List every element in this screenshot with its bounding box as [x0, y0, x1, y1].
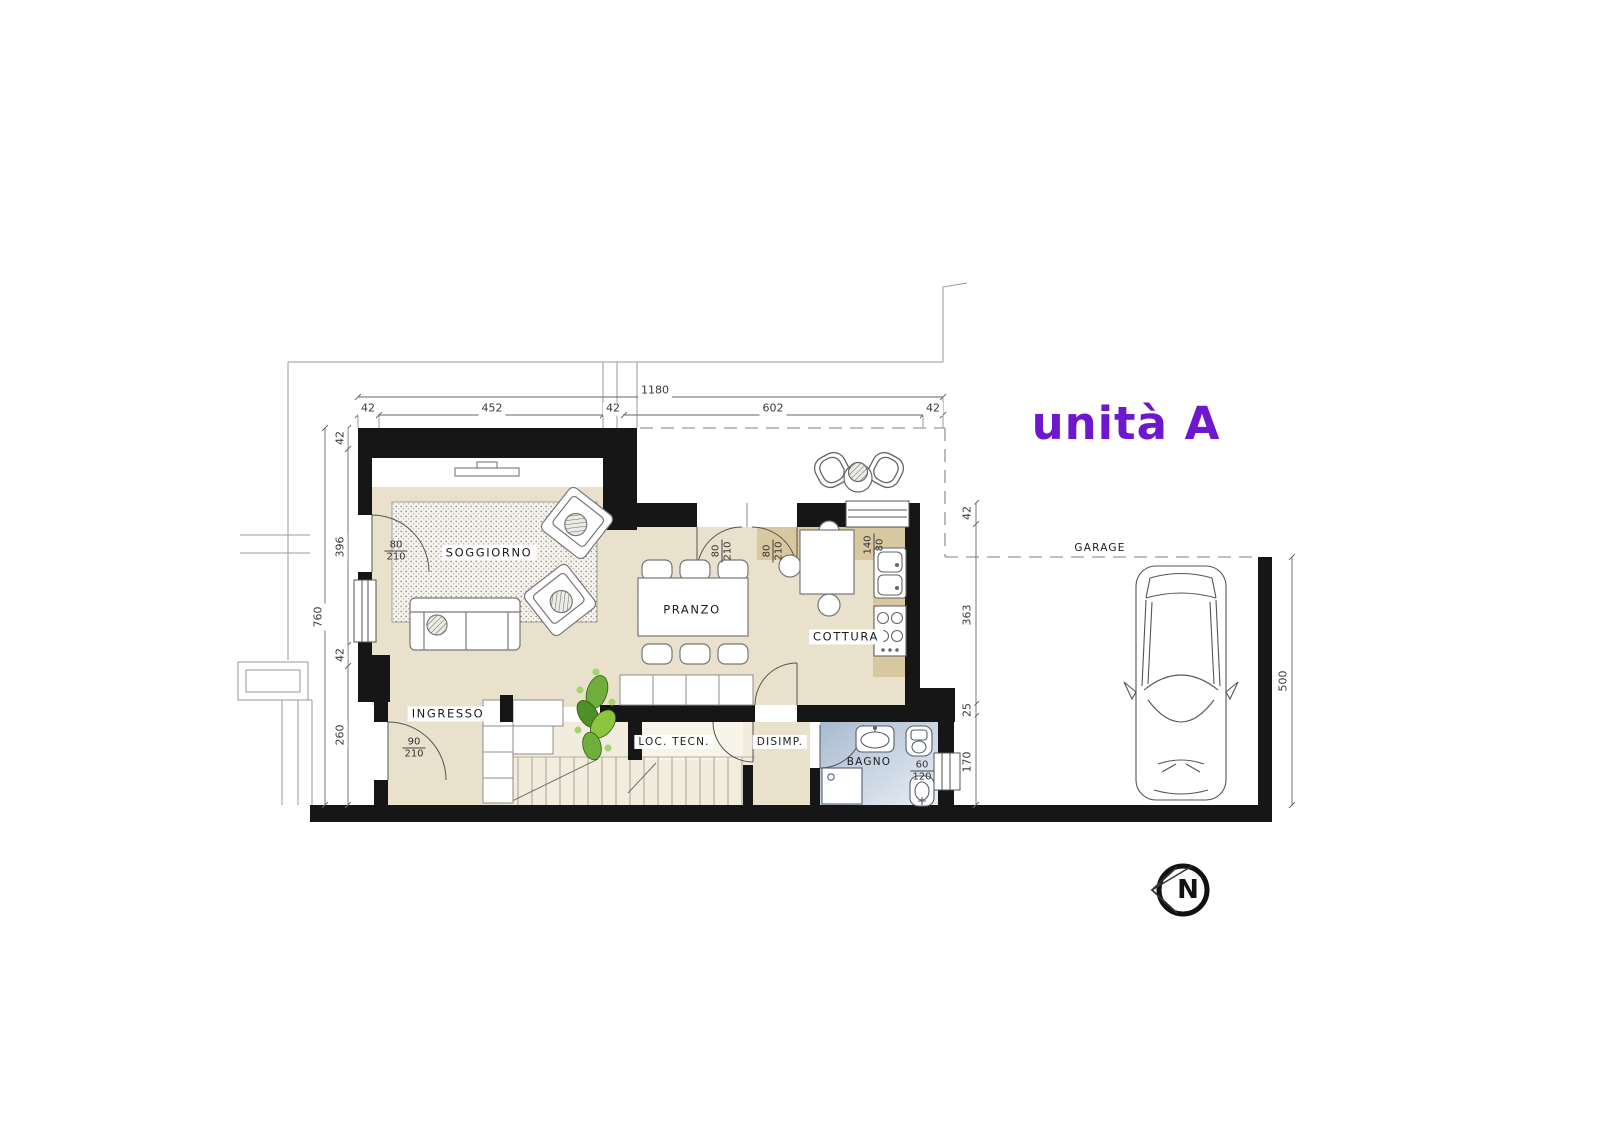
opening-size-bagno-window: 60 120	[910, 760, 933, 783]
dim-top-seg: 42	[603, 403, 623, 416]
wardrobe-row	[620, 675, 753, 705]
dim-overall-width: 1180	[638, 385, 672, 398]
floor-plan-drawing	[0, 0, 1600, 1131]
dim-top-seg: 452	[479, 403, 506, 416]
dim-top-seg: 602	[760, 403, 787, 416]
floor-plan-page: unità A SOGGIORNO PRANZO COTTURA INGRESS…	[0, 0, 1600, 1131]
dim-left-overall: 760	[313, 604, 326, 631]
patio-chair	[864, 448, 907, 491]
opening-size-cottura-window: 140 80	[863, 533, 886, 556]
dim-right-seg: 363	[962, 602, 975, 629]
dim-left-seg: 260	[335, 722, 348, 749]
shower	[822, 768, 862, 804]
dim-top-seg: 42	[923, 403, 943, 416]
dim-top-seg: 42	[358, 403, 378, 416]
opening-size-pranzo-door-right: 80 210	[762, 539, 785, 562]
bath-sink	[856, 726, 894, 752]
opening-size-soggiorno-door: 80 210	[384, 540, 407, 563]
dim-left-seg: 396	[335, 534, 348, 561]
room-label-ingresso: INGRESSO	[408, 706, 489, 721]
cottura-window	[846, 501, 909, 527]
tv-unit	[455, 462, 519, 476]
room-label-disimp: DISIMP.	[753, 735, 807, 749]
bagno-window	[934, 753, 960, 790]
dim-left-seg: 42	[335, 645, 348, 665]
room-label-cottura: COTTURA	[809, 629, 883, 644]
sofa	[410, 598, 520, 650]
room-label-garage: GARAGE	[1070, 541, 1129, 555]
dim-right-seg: 42	[962, 503, 975, 523]
room-label-bagno: BAGNO	[843, 755, 895, 769]
car	[1124, 566, 1238, 800]
room-label-soggiorno: SOGGIORNO	[442, 545, 537, 560]
room-label-loc-tecn: LOC. TECN.	[634, 735, 713, 749]
north-letter: N	[1177, 876, 1199, 906]
dim-garage-depth: 500	[1278, 668, 1291, 695]
opening-size-pranzo-door-left: 80 210	[711, 539, 734, 562]
dim-right-seg: 25	[962, 700, 975, 720]
soggiorno-window	[354, 580, 376, 642]
dim-left-seg: 42	[335, 428, 348, 448]
opening-size-ingresso-door: 90 210	[402, 737, 425, 760]
room-label-pranzo: PRANZO	[659, 602, 724, 617]
toilet	[906, 726, 932, 756]
dim-right-seg: 170	[962, 749, 975, 776]
unit-title: unità A	[1032, 398, 1221, 450]
